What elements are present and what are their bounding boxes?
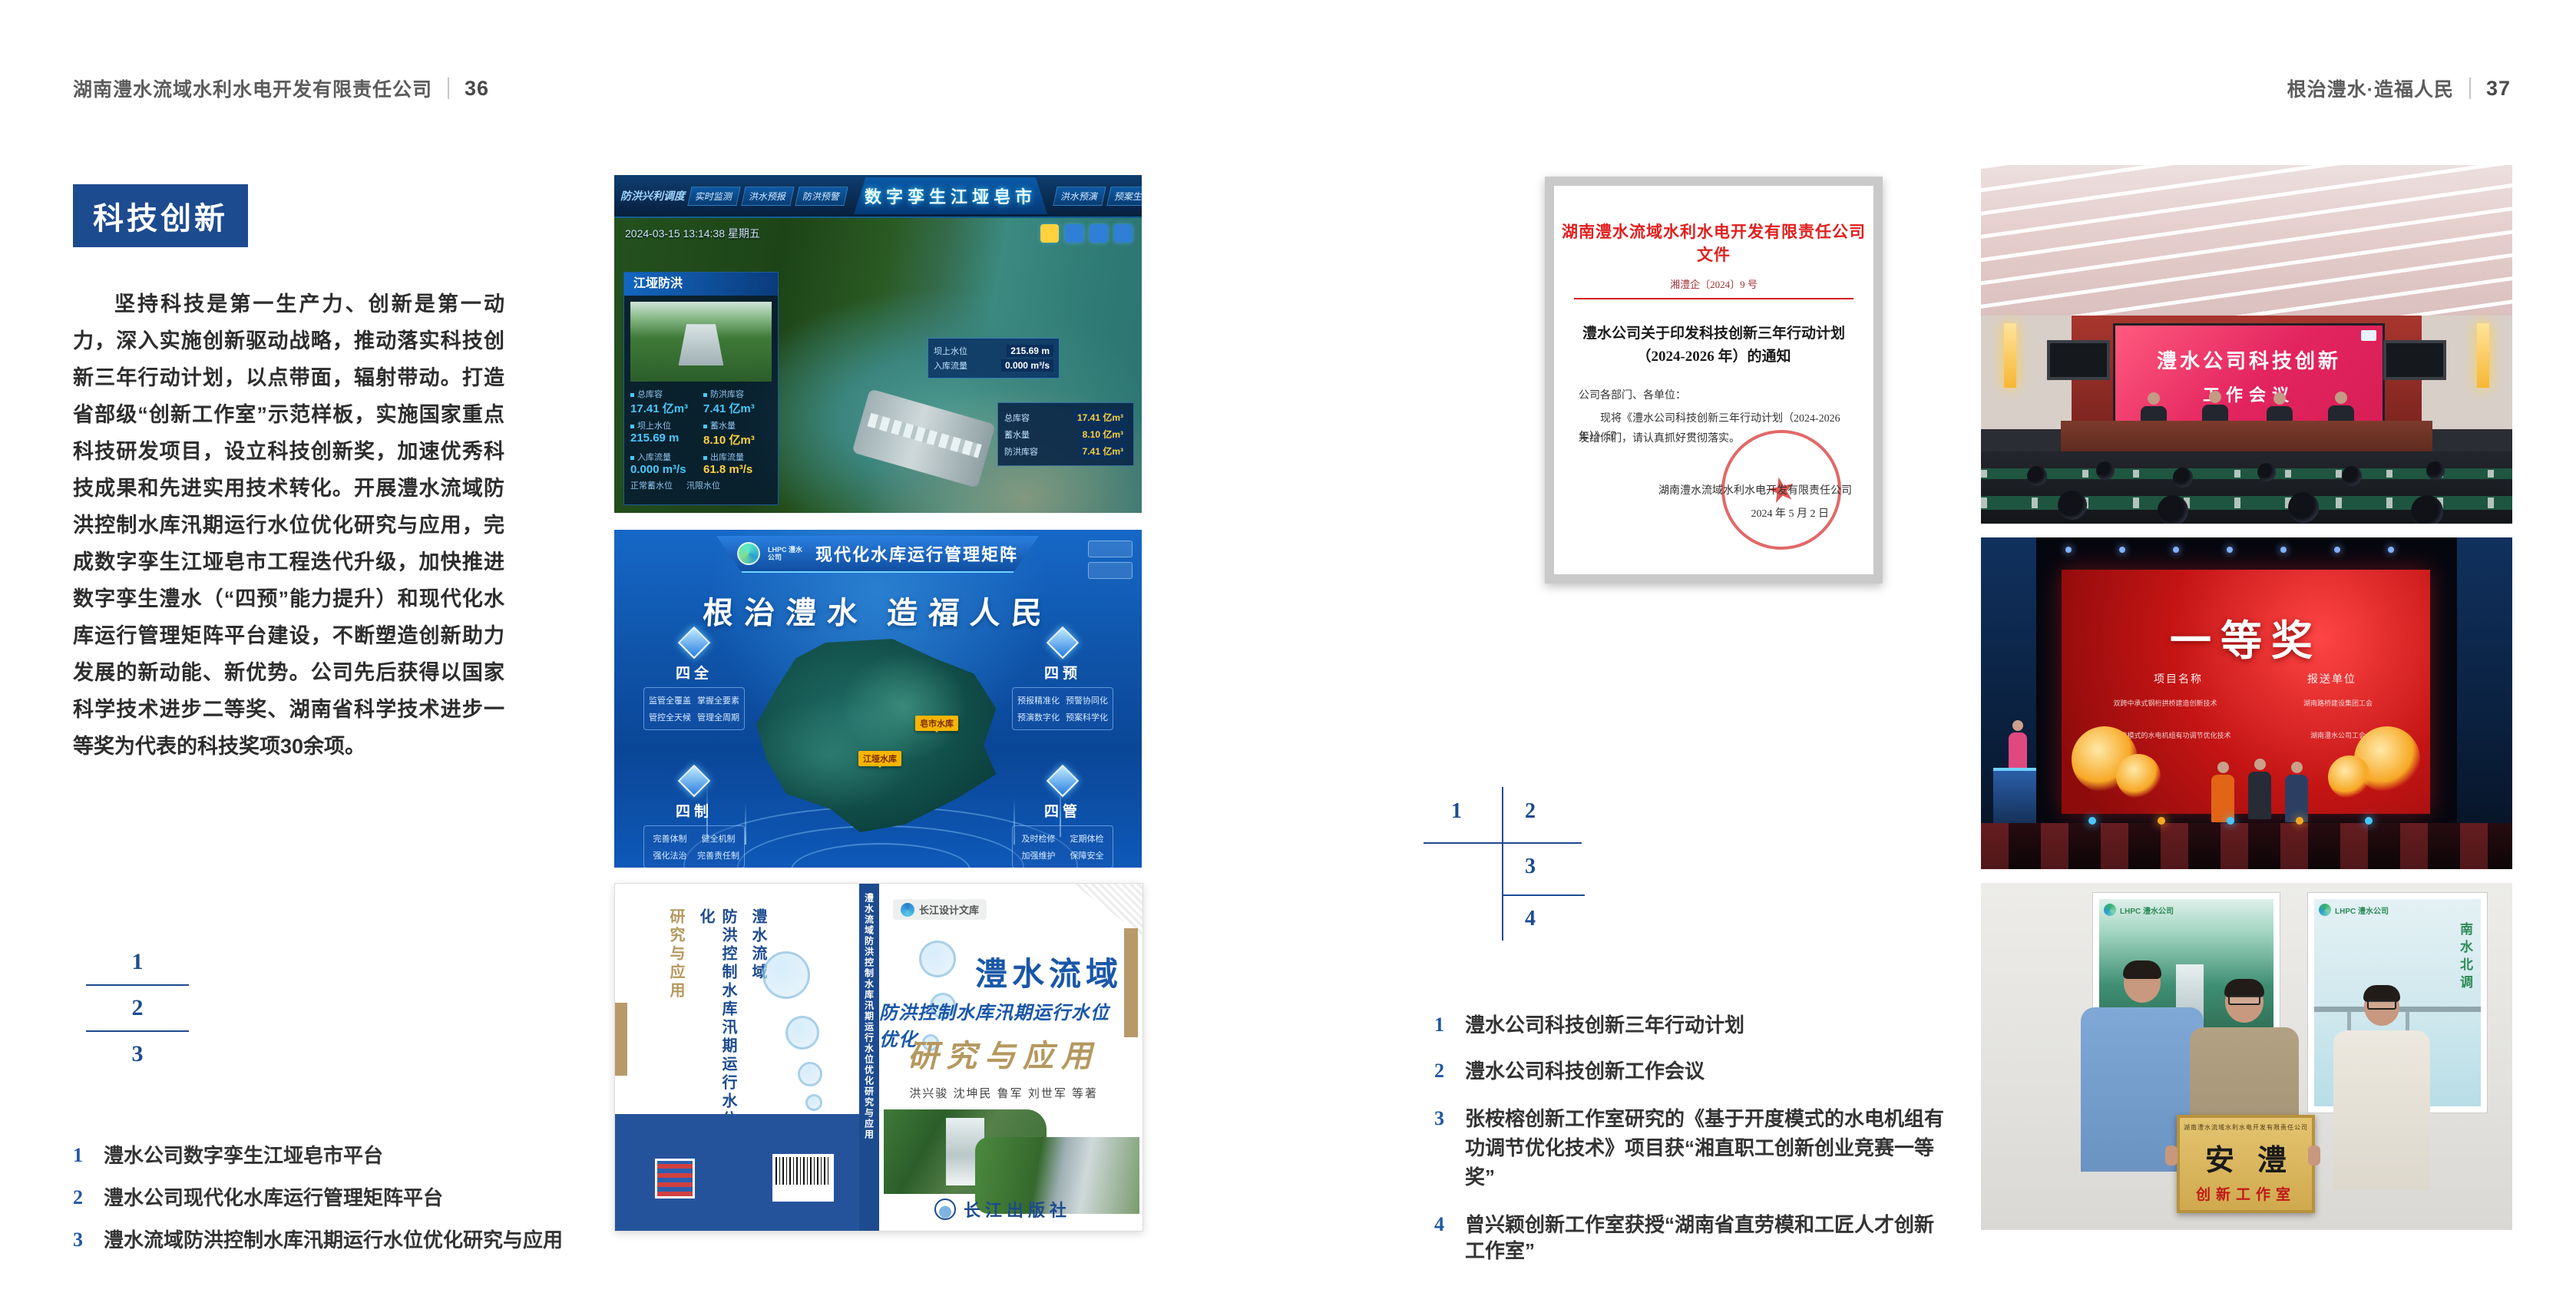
info-row: 蓄水量 8.10 亿m³ — [1004, 427, 1127, 441]
panel-items: 完善体制 健全机制 强化法治 完善责任制 — [643, 825, 745, 868]
reservoir-info-panel: 总库容 17.41 亿m³ 蓄水量 8.10 亿m³ 防洪库容 7.41 亿m³ — [997, 402, 1134, 466]
cube-icon — [678, 627, 710, 659]
audience-head — [2426, 461, 2445, 480]
lhpc-logo-icon — [737, 542, 760, 565]
info-value: 7.41 亿m³ — [1079, 444, 1127, 458]
panel-item: 监管全覆盖 — [647, 694, 693, 706]
caption-text: 澧水流域防洪控制水库汛期运行水位优化研究与应用 — [104, 1227, 563, 1253]
audience-head — [2058, 491, 2087, 520]
stat-cell: 出库流量 61.8 m³/s — [703, 451, 772, 476]
info-label: 蓄水量 — [1004, 428, 1030, 441]
caption-number: 1 — [1434, 1012, 1465, 1038]
map-tag-jiangya: 江垭水库 — [858, 751, 901, 766]
figure-index-right: 1 2 3 4 — [1428, 787, 1597, 952]
panel-item: 管理全周期 — [696, 711, 741, 723]
reservoir-stats-grid: 总库容 17.41 亿m³ 防洪库容 7.41 亿m³ 坝上水位 215.69 … — [624, 388, 778, 476]
panel-item: 健全机制 — [696, 832, 741, 845]
presenter-suit — [2248, 759, 2271, 819]
nav-menu-label: 防洪兴利调度 — [620, 188, 685, 203]
dam-thumbnail-photo — [630, 302, 772, 382]
red-divider-line — [1574, 298, 1853, 299]
series-badge: 长江设计文库 — [893, 899, 987, 920]
document-title-line: （2024-2026 年）的通知 — [1554, 346, 1873, 369]
tag-row: 入库流量 0.000 m³/s — [934, 359, 1053, 372]
plaque-subtitle: 创新工作室 — [2180, 1183, 2312, 1204]
stat-cell: 蓄水量 8.10 亿m³ — [703, 419, 772, 448]
water-bubble — [762, 951, 810, 999]
water-bubble — [919, 941, 956, 977]
tab-realtime-monitoring: 实时监测 — [687, 187, 740, 206]
back-cover-band — [615, 1114, 859, 1231]
person-white-shirt — [2328, 987, 2435, 1190]
caption-row: 4 曾兴颖创新工作室获授“湖南省直劳模和工匠人才创新工作室” — [1434, 1212, 1950, 1264]
spotlight — [2173, 547, 2179, 553]
panel-siyu: 四预 预报精准化 预警协同化 预演数字化 预案科学化 — [1012, 631, 1113, 730]
panel-siguan: 四管 及时检修 定期体检 加强维护 保障安全 — [1012, 769, 1113, 868]
floor-lamp — [2365, 817, 2373, 825]
page-number-left: 36 — [465, 77, 489, 101]
index-divider — [86, 1030, 189, 1032]
stat-label: 坝上水位 — [630, 419, 699, 431]
hand — [2165, 1146, 2178, 1165]
winner-navy — [2285, 762, 2308, 822]
figure-index-left: 1 2 3 — [86, 949, 189, 1067]
panel-item: 预演数字化 — [1016, 711, 1061, 723]
figure-number: 3 — [1525, 855, 1536, 879]
document-title-line: 澧水公司关于印发科技创新三年行动计划 — [1554, 322, 1873, 346]
stage-floor — [1981, 823, 2512, 869]
caption-number: 3 — [73, 1227, 104, 1253]
cube-icon — [1047, 627, 1079, 659]
tag-label: 入库流量 — [934, 359, 967, 372]
screen-logo-icon — [2361, 330, 2376, 341]
index-horizontal-line — [1424, 842, 1582, 844]
photo-innovation-meeting: 澧水公司科技创新 工作会议 — [1981, 165, 2512, 524]
panel-item: 预警协同化 — [1064, 694, 1109, 706]
panel-item: 加强维护 — [1016, 849, 1061, 861]
tan-tab — [615, 1003, 627, 1076]
spotlight — [2334, 547, 2340, 553]
panel-item: 预案科学化 — [1064, 711, 1109, 723]
award-row-unit: 湖南路桥建设集团工会 — [2257, 699, 2419, 708]
stat-label: 总库容 — [630, 388, 699, 400]
panel-siquan: 四全 监管全覆盖 掌握全要素 管控全天候 管理全周期 — [643, 631, 745, 730]
stat-cell: 总库容 17.41 亿m³ — [630, 388, 699, 416]
panel-name: 四全 — [643, 662, 745, 683]
caption-row: 1 澧水公司科技创新三年行动计划 — [1434, 1012, 1950, 1038]
spread-slogan: 根治澧水·造福人民 — [2287, 74, 2454, 102]
spotlight — [2065, 547, 2072, 553]
document-date: 2024 年 5 月 2 日 — [1751, 505, 1830, 521]
poster-logo: LHPC 澧水公司 — [2104, 904, 2174, 916]
stat-value: 215.69 m — [630, 431, 699, 445]
publisher-logo-icon — [934, 1199, 956, 1220]
basin-3d-map — [756, 639, 1004, 832]
water-bubble — [785, 1016, 819, 1050]
column-header-project: 项目名称 — [2154, 671, 2203, 686]
info-value: 8.10 亿m³ — [1079, 427, 1127, 441]
stat-cell: 入库流量 0.000 m³/s — [630, 451, 699, 476]
lectern — [1993, 768, 2036, 826]
spotlight — [2388, 547, 2394, 553]
hand — [2308, 1146, 2320, 1165]
stat-label: 汛限水位 — [686, 479, 720, 491]
book-back-cover: 澧水流域 防洪控制水库汛期运行水位优化 研究与应用 — [615, 884, 859, 1231]
lhpc-logo-icon — [2319, 904, 2331, 916]
caption-number: 3 — [1434, 1104, 1465, 1192]
datetime-label: 2024-03-15 13:14:38 星期五 — [625, 226, 760, 241]
tab-flood-warning: 防洪预警 — [795, 187, 848, 206]
panel-name: 四制 — [643, 800, 745, 821]
panel-item: 预报精准化 — [1016, 694, 1061, 706]
info-label: 防洪库容 — [1004, 445, 1038, 458]
figure-official-document: 湖南澧水流域水利水电开发有限责任公司文件 湘澧企〔2024〕9 号 澧水公司关于… — [1545, 177, 1883, 584]
tag-row: 坝上水位 215.69 m — [934, 345, 1053, 357]
figure-number: 3 — [86, 1041, 189, 1067]
lhpc-logo-text: LHPC 澧水公司 — [768, 546, 808, 561]
caption-text: 澧水公司科技创新三年行动计划 — [1465, 1012, 1744, 1038]
locate-icon — [1090, 224, 1108, 243]
caption-text: 曾兴颖创新工作室获授“湖南省直劳模和工匠人才创新工作室” — [1465, 1212, 1950, 1264]
map-tag-zaoshi: 皂市水库 — [915, 716, 958, 731]
audience-head — [2027, 466, 2047, 486]
floor-lamp — [2088, 817, 2096, 825]
lhpc-logo-icon — [2104, 904, 2116, 916]
figure-book-cover: 澧水流域 防洪控制水库汛期运行水位优化 研究与应用 澧水流域防洪控制水库汛期运行… — [614, 883, 1143, 1232]
panel-item: 定期体检 — [1064, 832, 1109, 845]
wall-tv — [2383, 340, 2446, 380]
panel-items: 监管全覆盖 掌握全要素 管控全天候 管理全周期 — [643, 687, 745, 730]
audience-head — [2288, 492, 2319, 523]
golden-orb — [2328, 755, 2371, 798]
qr-code — [655, 1159, 695, 1199]
tag-label: 坝上水位 — [934, 345, 967, 357]
stat-value: 8.10 亿m³ — [703, 431, 772, 448]
panel-sizhi: 四制 完善体制 健全机制 强化法治 完善责任制 — [643, 769, 745, 868]
tag-value: 0.000 m³/s — [1001, 359, 1053, 372]
platform-header: LHPC 澧水公司 现代化水库运行管理矩阵 — [716, 536, 1039, 573]
photo-award-ceremony: 一等奖 项目名称 报送单位 双跨中承式钢桁拱桥建造创新技术 湖南路桥建设集团工会… — [1981, 537, 2512, 869]
company-name: 湖南澧水流域水利水电开发有限责任公司 — [73, 74, 432, 102]
book-front-cover: 长江设计文库 澧水流域 防洪控制水库汛期运行水位优化 研究与应用 洪兴骏 沈坤民… — [879, 884, 1143, 1231]
stat-value: 17.41 亿m³ — [630, 400, 699, 416]
info-row: 总库容 17.41 亿m³ — [1004, 410, 1127, 425]
caption-row: 3 张桉榕创新工作室研究的《基于开度模式的水电机组有功调节优化技术》项目获“湘直… — [1434, 1104, 1950, 1192]
document-signer: 湖南澧水流域水利水电开发有限责任公司 — [1658, 482, 1852, 498]
captions-right: 1 澧水公司科技创新三年行动计划 2 澧水公司科技创新工作会议 3 张桉榕创新工… — [1434, 1012, 1950, 1280]
audience-head — [2096, 461, 2115, 480]
stat-label: 防洪库容 — [703, 388, 772, 400]
poster-logo: LHPC 澧水公司 — [2319, 904, 2389, 916]
golden-orb — [2116, 754, 2161, 798]
figure-number: 1 — [86, 949, 189, 975]
changjiang-design-logo-icon — [901, 903, 914, 917]
innovation-workshop-plaque: 湖南澧水流域水利水电开发有限责任公司 安澧 创新工作室 — [2177, 1115, 2315, 1213]
caption-number: 4 — [1434, 1212, 1465, 1264]
meeting-ceiling — [1981, 165, 2512, 326]
info-row: 防洪库容 7.41 亿m³ — [1004, 444, 1127, 458]
plaque-main-title: 安澧 — [2180, 1136, 2312, 1179]
panel-item: 完善体制 — [647, 832, 693, 845]
rostrum — [2061, 421, 2432, 451]
book-title-line3: 研究与应用 — [908, 1031, 1100, 1076]
barcode — [772, 1154, 834, 1202]
header-divider — [2469, 78, 2471, 99]
floor-lamp — [2227, 817, 2234, 825]
expand-button — [1088, 562, 1133, 579]
caption-number: 2 — [1434, 1058, 1465, 1084]
floor-lamp — [2296, 817, 2303, 825]
figure-digital-twin-platform: 防洪兴利调度 实时监测 洪水预报 防洪预警 数字孪生江垭皂市 洪水预演 预案生成… — [614, 175, 1142, 513]
audience-head — [2173, 468, 2193, 488]
document-paper: 湖南澧水流域水利水电开发有限责任公司文件 湘澧企〔2024〕9 号 澧水公司关于… — [1554, 186, 1873, 574]
header-left: 湖南澧水流域水利水电开发有限责任公司 36 — [73, 74, 489, 102]
caption-text: 澧水公司数字孪生江垭皂市平台 — [104, 1142, 383, 1169]
photo-workshop-plaque: LHPC 澧水公司 LHPC 澧水公司 南水北调 湖南澧水流域水 — [1981, 883, 2512, 1230]
platform-title: 数字孪生江垭皂市 — [854, 177, 1047, 214]
flood-control-panel: 江垭防洪 总库容 17.41 亿m³ 防洪库容 7.41 亿m³ 坝上水位 21… — [623, 272, 779, 505]
intro-paragraph: 坚持科技是第一生产力、创新是第一动力，深入实施创新驱动战略，推动落实科技创新三年… — [73, 286, 504, 765]
award-title: 一等奖 — [2062, 607, 2430, 667]
wall-sconce — [2477, 323, 2489, 388]
figure-number: 2 — [86, 995, 189, 1021]
caption-row: 1 澧水公司数字孪生江垭皂市平台 — [73, 1142, 564, 1169]
layers-icon — [1065, 224, 1083, 243]
stat-label: 入库流量 — [630, 451, 699, 463]
lhpc-logo-text: LHPC 澧水公司 — [2120, 904, 2174, 916]
scene-data-tag: 坝上水位 215.69 m 入库流量 0.000 m³/s — [928, 338, 1060, 379]
caption-row: 2 澧水公司现代化水库运行管理矩阵平台 — [73, 1185, 564, 1211]
caption-row: 3 澧水流域防洪控制水库汛期运行水位优化研究与应用 — [73, 1227, 564, 1253]
caption-number: 2 — [73, 1185, 104, 1211]
stage-side-panel — [2457, 537, 2512, 869]
audience-head — [2342, 466, 2362, 486]
award-row-project: 双跨中承式钢桁拱桥建造创新技术 — [2085, 699, 2246, 708]
panel-name: 四预 — [1012, 662, 1113, 683]
audience-head — [2158, 495, 2188, 524]
floor-lamp — [2158, 817, 2165, 825]
poster-vertical-title: 南水北调 — [2455, 922, 2475, 993]
platform-header-bar: 防洪兴利调度 实时监测 洪水预报 防洪预警 数字孪生江垭皂市 洪水预演 预案生成… — [614, 175, 1142, 218]
caption-row: 2 澧水公司科技创新工作会议 — [1434, 1058, 1950, 1084]
figure-number: 4 — [1525, 907, 1536, 931]
figure-number: 1 — [1451, 799, 1462, 824]
header-divider — [448, 78, 449, 99]
captions-left: 1 澧水公司数字孪生江垭皂市平台 2 澧水公司现代化水库运行管理矩阵平台 3 澧… — [73, 1142, 564, 1269]
caption-text: 张桉榕创新工作室研究的《基于开度模式的水电机组有功调节优化技术》项目获“湘直职工… — [1465, 1104, 1950, 1192]
water-bubble — [798, 1062, 822, 1086]
document-title: 澧水公司关于印发科技创新三年行动计划 （2024-2026 年）的通知 — [1554, 322, 1873, 369]
tab-plan-generation: 预案生成 — [1106, 187, 1142, 206]
spotlight — [2227, 547, 2233, 553]
series-name: 长江设计文库 — [919, 902, 979, 917]
stat-cell: 坝上水位 215.69 m — [630, 419, 699, 448]
light-pillar — [745, 802, 746, 845]
panel-item: 掌握全要素 — [696, 694, 741, 706]
info-label: 总库容 — [1004, 412, 1030, 424]
panel-name: 四管 — [1012, 800, 1113, 821]
index-divider — [86, 984, 189, 986]
wall-sconce — [2004, 323, 2016, 388]
panel-item: 强化法治 — [647, 849, 693, 861]
platform-title: 现代化水库运行管理矩阵 — [815, 541, 1018, 566]
spotlight — [2119, 547, 2125, 553]
screen-title-line1: 澧水公司科技创新 — [2115, 346, 2383, 374]
index-vertical-line — [1502, 787, 1503, 941]
panel-item: 及时检修 — [1016, 832, 1061, 845]
figure-number: 2 — [1525, 799, 1536, 824]
tan-bar — [1124, 928, 1138, 1037]
panel-item: 保障安全 — [1064, 849, 1109, 861]
section-title-badge: 科技创新 — [73, 184, 248, 247]
caption-number: 1 — [73, 1142, 104, 1169]
cube-icon — [678, 765, 710, 797]
document-number: 湘澧企〔2024〕9 号 — [1554, 276, 1873, 291]
book-spine: 澧水流域防洪控制水库汛期运行水位优化研究与应用 — [859, 884, 879, 1231]
book-title-line1: 澧水流域 — [975, 948, 1123, 995]
panel-title: 江垭防洪 — [624, 273, 778, 296]
toolbar-icons — [1040, 224, 1133, 243]
stat-value: 61.8 m³/s — [703, 463, 772, 476]
header-right: 根治澧水·造福人民 37 — [2287, 74, 2511, 102]
audience-head — [2411, 495, 2443, 524]
index-horizontal-line — [1502, 894, 1585, 896]
info-value: 17.41 亿m³ — [1073, 410, 1127, 425]
lhpc-logo-text: LHPC 澧水公司 — [2335, 904, 2389, 916]
speaker-silhouette — [2202, 391, 2228, 425]
panel-item: 管控全天候 — [647, 711, 693, 723]
spotlight — [2280, 547, 2287, 553]
spine-title: 澧水流域防洪控制水库汛期运行水位优化研究与应用 — [863, 893, 876, 1231]
winner-orange — [2211, 762, 2234, 822]
magazine-spread: { "page": { "accent_blue": "#1d4b8f", "c… — [0, 0, 2576, 1306]
panel-item: 完善责任制 — [696, 849, 741, 861]
stat-label: 出库流量 — [703, 451, 772, 463]
stat-value: 0.000 m³/s — [630, 463, 699, 476]
page-number-right: 37 — [2486, 77, 2511, 101]
caption-text: 澧水公司科技创新工作会议 — [1465, 1058, 1705, 1084]
audience-head — [2257, 463, 2276, 481]
caption-text: 澧水公司现代化水库运行管理矩阵平台 — [104, 1185, 443, 1211]
close-button — [1088, 541, 1133, 557]
tag-value: 215.69 m — [1007, 345, 1053, 357]
figure-matrix-platform: LHPC 澧水公司 现代化水库运行管理矩阵 根治澧水 造福人民 四全 监管全覆盖… — [614, 530, 1142, 868]
publisher-block: 长江出版社 — [934, 1197, 1071, 1222]
document-red-header: 湖南澧水流域水利水电开发有限责任公司文件 — [1554, 220, 1873, 266]
back-title-line: 研究与应用 — [665, 908, 687, 1000]
publisher-name: 长江出版社 — [964, 1197, 1071, 1222]
document-salutation: 公司各部门、各单位： — [1579, 387, 1852, 405]
plaque-header: 湖南澧水流域水利水电开发有限责任公司 — [2180, 1123, 2312, 1132]
stat-label: 正常蓄水位 — [630, 479, 673, 491]
water-bubble — [805, 1094, 822, 1111]
tab-flood-forecast: 洪水预报 — [741, 187, 794, 206]
book-authors: 洪兴骏 沈坤民 鲁军 刘世军 等著 — [909, 1085, 1098, 1101]
wall-tv — [2047, 340, 2110, 380]
column-header-unit: 报送单位 — [2307, 671, 2356, 686]
stat-cell: 防洪库容 7.41 亿m³ — [703, 388, 772, 416]
user-icon — [1040, 224, 1059, 243]
settings-icon — [1114, 224, 1133, 243]
stat-value: 7.41 亿m³ — [703, 400, 772, 416]
extra-stat-labels: 正常蓄水位 汛限水位 — [624, 476, 778, 494]
panel-items: 及时检修 定期体检 加强维护 保障安全 — [1012, 825, 1113, 868]
panel-items: 预报精准化 预警协同化 预演数字化 预案科学化 — [1012, 687, 1113, 730]
stat-label: 蓄水量 — [703, 419, 772, 431]
cube-icon — [1047, 765, 1079, 797]
tab-flood-rehearsal: 洪水预演 — [1053, 187, 1106, 206]
